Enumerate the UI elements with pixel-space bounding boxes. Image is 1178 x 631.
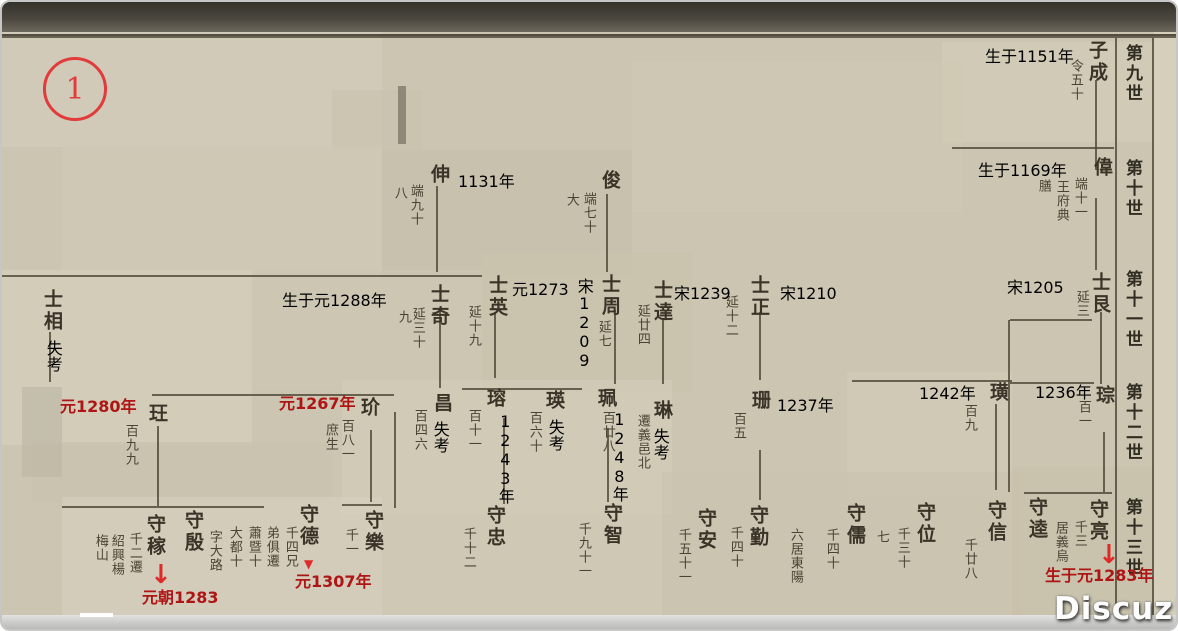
person-name: 守勤 xyxy=(748,505,767,549)
person-name: 琮 xyxy=(1094,385,1113,407)
person-name: 俊 xyxy=(600,170,619,192)
person-note: 紹興楊 xyxy=(107,534,124,576)
typed-note-red: 元1280年 xyxy=(60,399,137,416)
person-name: 守逵 xyxy=(1027,497,1046,541)
person-note: 庶生 xyxy=(321,423,338,451)
person-name: 珮 xyxy=(596,388,615,410)
typed-note: 生于元1288年 xyxy=(282,293,387,310)
person-note: 端九十 xyxy=(406,184,423,226)
connector-line xyxy=(1095,198,1097,270)
person-note: 端七十 xyxy=(579,192,596,234)
generation-header: 第十世 xyxy=(1123,159,1140,219)
person-name: 守安 xyxy=(696,508,715,552)
person-note: 千十二 xyxy=(459,527,476,569)
paper-patch xyxy=(32,442,332,502)
paper-patch xyxy=(62,147,382,272)
person-name: 昌 xyxy=(432,393,451,415)
red-arrow-icon: ▼ xyxy=(304,558,313,570)
person-name: 士正 xyxy=(749,275,768,319)
connector-line xyxy=(152,394,394,396)
typed-note: 1236年 xyxy=(1035,385,1092,402)
connector-line xyxy=(662,320,664,384)
person-note: 百十一 xyxy=(464,409,481,451)
person-note: 居義烏 xyxy=(1051,521,1068,563)
person-note: 膳 xyxy=(1034,179,1051,193)
typed-note: 失考 xyxy=(651,428,668,460)
person-name: 琳 xyxy=(652,400,671,422)
person-note: 大都十 xyxy=(225,526,242,568)
person-note: 百五 xyxy=(729,412,746,440)
generation-header: 第十一世 xyxy=(1123,270,1140,350)
person-name: 子成 xyxy=(1087,40,1106,84)
typed-note-red: 生于元1283年 xyxy=(1045,568,1154,585)
red-arrow-icon: ↓ xyxy=(1098,542,1120,568)
person-note: 蕭暨十 xyxy=(244,526,261,568)
person-name: 珊 xyxy=(750,390,769,412)
person-note: 七 xyxy=(872,530,889,544)
typed-note-red: 元朝1283 xyxy=(142,590,219,607)
person-name: 士周 xyxy=(600,274,619,318)
typed-note: 宋1209 xyxy=(575,278,592,370)
connector-line xyxy=(1103,432,1105,492)
person-name: 守信 xyxy=(986,500,1005,544)
person-note: 字大路 xyxy=(205,530,222,572)
person-note: 大 xyxy=(562,193,579,207)
connector-line xyxy=(436,186,438,272)
person-note: 千三 xyxy=(1070,520,1087,548)
person-name: 偉 xyxy=(1092,157,1111,179)
generation-header: 第九世 xyxy=(1123,44,1140,104)
person-note: 千二遷 xyxy=(125,532,142,574)
person-name: 瑢 xyxy=(485,388,504,410)
bottom-edge-strip xyxy=(2,615,1176,629)
connector-line xyxy=(2,36,1178,38)
person-note: 千五十一 xyxy=(674,528,691,584)
person-note: 弟俱遷 xyxy=(262,526,279,568)
person-name: 士相 xyxy=(42,289,61,333)
connector-line xyxy=(394,412,396,508)
typed-note: 1248年 xyxy=(610,410,627,502)
connector-line xyxy=(494,312,496,378)
connector-line xyxy=(995,404,997,490)
paper-patch xyxy=(632,62,962,212)
connector-line xyxy=(1010,319,1092,321)
typed-note: 失考 xyxy=(431,421,448,453)
person-name: 守稼 xyxy=(145,514,164,558)
person-note: 千四兄 xyxy=(281,526,298,568)
paper-patch xyxy=(332,90,422,150)
person-name: 士英 xyxy=(487,275,506,319)
person-note: 百九九 xyxy=(121,424,138,466)
person-name: 玠 xyxy=(359,397,378,419)
typed-note: 失考 xyxy=(44,340,61,372)
white-mark xyxy=(80,613,113,617)
typed-note: 1242年 xyxy=(919,386,976,403)
person-note: 延十九 xyxy=(464,305,481,347)
typed-note-red: 元1307年 xyxy=(295,574,372,591)
typed-note-red: 元1267年 xyxy=(279,396,356,413)
person-name: 士達 xyxy=(652,280,671,324)
person-note: 百一 xyxy=(1074,400,1091,428)
person-note: 端十一 xyxy=(1070,177,1087,219)
paper-patch xyxy=(1154,32,1178,631)
book-edge-band xyxy=(2,2,1176,32)
connector-line xyxy=(342,504,382,506)
connector-line xyxy=(952,147,1114,149)
connector-line xyxy=(614,310,616,384)
person-name: 守德 xyxy=(298,504,317,548)
typed-note: 失考 xyxy=(546,419,563,451)
connector-line xyxy=(1024,492,1112,494)
connector-line xyxy=(759,450,761,500)
connector-line xyxy=(1008,320,1010,492)
paper-patch xyxy=(398,86,406,144)
person-note: 梅山 xyxy=(91,534,108,562)
person-name: 守樂 xyxy=(363,510,382,554)
person-note: 延廿四 xyxy=(633,304,650,346)
badge-number: 1 xyxy=(65,72,84,107)
typed-note: 生于1169年 xyxy=(978,163,1067,180)
person-note: 千四十 xyxy=(726,526,743,568)
connector-line xyxy=(2,275,482,277)
person-note: 百八一 xyxy=(337,419,354,461)
person-name: 守忠 xyxy=(485,505,504,549)
person-name: 璜 xyxy=(988,382,1007,404)
typed-note: 1243年 xyxy=(496,412,513,504)
person-name: 伸 xyxy=(429,164,448,186)
typed-note: 宋1205 xyxy=(1007,280,1064,297)
discuz-watermark: Discuz! xyxy=(1054,591,1178,627)
typed-note: 1131年 xyxy=(458,174,515,191)
connector-line xyxy=(1115,38,1117,614)
person-note: 千九十一 xyxy=(574,522,591,578)
paper-patch xyxy=(692,242,1022,387)
person-note: 九 xyxy=(394,310,411,324)
connector-line xyxy=(370,430,372,502)
person-note: 千廿八 xyxy=(960,538,977,580)
person-name: 士艮 xyxy=(1090,272,1109,316)
connector-line xyxy=(606,194,608,272)
person-note: 王府典 xyxy=(1052,180,1069,222)
person-note: 八 xyxy=(390,186,407,200)
connector-line xyxy=(157,426,159,506)
generation-header: 第十二世 xyxy=(1123,383,1140,463)
circle-badge: 1 xyxy=(43,57,107,121)
person-note: 百四六 xyxy=(410,409,427,451)
typed-note: 元1273 xyxy=(512,282,569,299)
connector-line xyxy=(759,312,761,380)
person-note: 六居東陽 xyxy=(786,528,803,584)
typed-note: 宋1239 xyxy=(674,286,731,303)
person-name: 守亮 xyxy=(1088,499,1107,543)
person-name: 守殷 xyxy=(183,510,202,554)
red-arrow-icon: ↓ xyxy=(150,562,172,588)
typed-note: 生于1151年 xyxy=(985,49,1074,66)
connector-line xyxy=(1152,38,1154,618)
person-note: 百九 xyxy=(960,404,977,432)
person-note: 千一 xyxy=(341,528,358,556)
person-note: 千三十 xyxy=(893,527,910,569)
person-note: 延七 xyxy=(594,320,611,348)
person-note: 百六十 xyxy=(525,411,542,453)
person-note: 遷義邑北 xyxy=(633,414,650,470)
person-name: 守位 xyxy=(915,502,934,546)
paper-patch xyxy=(22,387,62,477)
person-name: 玨 xyxy=(147,403,166,425)
typed-note: 1237年 xyxy=(777,398,834,415)
person-name: 守儒 xyxy=(845,503,864,547)
person-note: 延三 xyxy=(1072,290,1089,318)
connector-line xyxy=(62,506,264,508)
scanned-genealogy-page: 第九世第十世第十一世第十二世第十三世子成令五十偉端十一王府典膳俊端七十大伸端九十… xyxy=(0,0,1178,631)
person-name: 守智 xyxy=(602,503,621,547)
person-name: 瑛 xyxy=(544,390,563,412)
person-note: 千四十 xyxy=(822,528,839,570)
connector-line xyxy=(1100,312,1102,384)
person-name: 士奇 xyxy=(429,284,448,328)
typed-note: 宋1210 xyxy=(780,286,837,303)
